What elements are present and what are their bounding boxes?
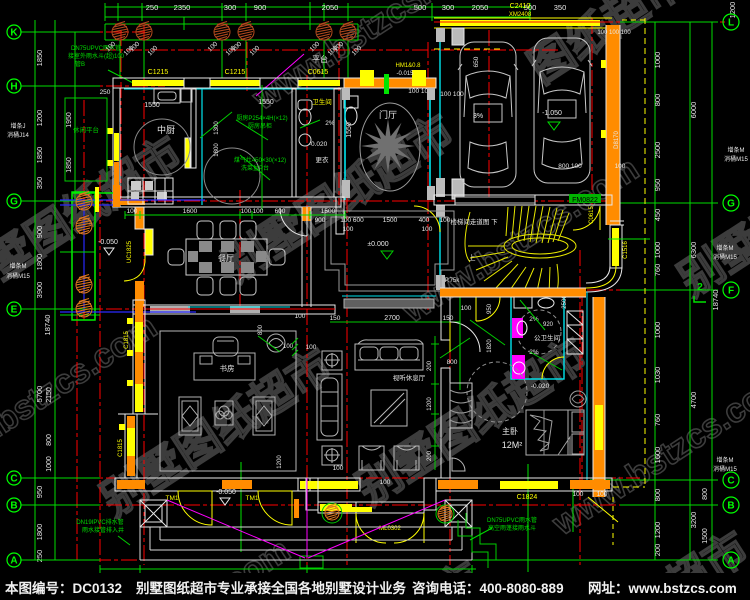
svg-text:800: 800	[653, 489, 662, 502]
svg-text:400: 400	[419, 217, 430, 224]
svg-text:消桶J14: 消桶J14	[7, 131, 29, 139]
svg-text:管B: 管B	[75, 60, 85, 68]
svg-text:600: 600	[275, 208, 286, 215]
svg-text:100: 100	[597, 491, 608, 498]
svg-text:楼梯间走道图 下: 楼梯间走道图 下	[450, 217, 498, 226]
svg-text:1550: 1550	[144, 102, 160, 109]
svg-text:H: H	[10, 82, 17, 93]
svg-text:100: 100	[615, 163, 626, 170]
svg-text:250: 250	[100, 89, 111, 96]
svg-text:消桶M15: 消桶M15	[6, 272, 30, 280]
svg-text:1550: 1550	[346, 122, 353, 138]
svg-text:-0.050: -0.050	[98, 239, 118, 246]
svg-text:2050: 2050	[472, 3, 489, 12]
svg-text:250: 250	[146, 3, 159, 12]
svg-text:K: K	[10, 28, 18, 39]
svg-text:100: 100	[283, 344, 294, 350]
svg-text:18740: 18740	[711, 290, 720, 311]
svg-text:2: 2	[697, 282, 703, 293]
svg-text:100: 100	[461, 305, 472, 312]
svg-text:6300: 6300	[689, 242, 698, 259]
svg-text:TM1: TM1	[166, 495, 179, 502]
svg-text:100: 100	[440, 217, 451, 224]
svg-text:-0.015: -0.015	[396, 71, 414, 77]
svg-text:增条M: 增条M	[717, 244, 734, 252]
svg-text:别墅图纸超市专业承接全国各地别墅设计业务: 别墅图纸超市专业承接全国各地别墅设计业务	[135, 580, 406, 596]
svg-text:HM1&0.8: HM1&0.8	[395, 63, 421, 69]
svg-text:本图编号：DC0132: 本图编号：DC0132	[5, 580, 122, 596]
svg-text:2150: 2150	[46, 387, 53, 403]
svg-text:100: 100	[422, 226, 433, 233]
svg-text:E: E	[11, 305, 18, 316]
svg-text:150: 150	[443, 315, 454, 322]
svg-text:C1516: C1516	[623, 241, 629, 259]
svg-text:B: B	[727, 501, 734, 512]
svg-text:200: 200	[653, 544, 662, 557]
svg-text:1950: 1950	[66, 112, 73, 128]
svg-text:100 100: 100 100	[440, 91, 464, 98]
svg-text:G: G	[727, 199, 735, 210]
svg-text:卫生间: 卫生间	[312, 97, 332, 106]
svg-text:1800: 1800	[214, 143, 220, 157]
svg-text:-0.050: -0.050	[216, 489, 236, 496]
svg-text:DN75UPVC雨水管: DN75UPVC雨水管	[487, 516, 537, 524]
svg-text:450: 450	[653, 209, 662, 222]
svg-text:C1824: C1824	[517, 494, 538, 501]
svg-text:更衣: 更衣	[316, 155, 330, 164]
svg-text:L: L	[728, 18, 734, 29]
svg-text:3%: 3%	[473, 113, 483, 120]
svg-text:1550: 1550	[258, 99, 274, 106]
svg-text:D8170: D8170	[614, 131, 620, 149]
svg-text:C1815: C1815	[124, 331, 130, 349]
svg-text:760: 760	[653, 414, 662, 427]
svg-text:12M²: 12M²	[502, 440, 523, 450]
svg-text:1200: 1200	[277, 455, 283, 469]
svg-text:1200: 1200	[427, 397, 433, 411]
svg-text:DN19IPVC排水管: DN19IPVC排水管	[76, 518, 123, 526]
svg-text:±0.000: ±0.000	[367, 241, 388, 248]
svg-text:C0615: C0615	[589, 206, 595, 224]
svg-text:1800: 1800	[35, 524, 44, 541]
svg-text:1200: 1200	[35, 110, 44, 127]
svg-text:A: A	[10, 556, 17, 567]
svg-text:C: C	[10, 474, 17, 485]
svg-text:平台: 平台	[312, 54, 328, 64]
svg-text:-0.020: -0.020	[531, 383, 550, 390]
svg-text:950: 950	[487, 303, 493, 314]
svg-text:咨询电话：400-8080-889: 咨询电话：400-8080-889	[412, 580, 564, 596]
svg-text:1500: 1500	[702, 528, 709, 544]
svg-text:增条M: 增条M	[728, 146, 745, 154]
svg-text:100: 100	[253, 208, 264, 215]
svg-text:A: A	[727, 556, 734, 567]
svg-text:950: 950	[653, 179, 662, 192]
svg-text:公卫生间: 公卫生间	[534, 333, 560, 342]
svg-text:休闲平台: 休闲平台	[73, 125, 99, 134]
svg-text:C1215: C1215	[225, 69, 246, 76]
svg-text:网址：www.bstzcs.com: 网址：www.bstzcs.com	[588, 580, 737, 596]
svg-text:800: 800	[447, 359, 458, 366]
svg-text:200: 200	[427, 450, 433, 461]
svg-text:200: 200	[427, 360, 433, 371]
svg-text:800: 800	[653, 94, 662, 107]
svg-text:2700: 2700	[384, 315, 400, 322]
svg-text:800: 800	[258, 324, 264, 335]
svg-text:1000: 1000	[653, 52, 662, 69]
svg-text:1800: 1800	[35, 254, 44, 271]
svg-text:P.75k: P.75k	[445, 278, 461, 284]
svg-text:C1215: C1215	[148, 69, 169, 76]
svg-text:1200: 1200	[653, 522, 662, 539]
svg-text:350: 350	[35, 177, 44, 190]
svg-text:1000: 1000	[46, 456, 53, 472]
svg-text:C1815: C1815	[118, 439, 124, 457]
svg-text:100: 100	[306, 344, 317, 351]
svg-text:920: 920	[543, 322, 554, 328]
svg-text:650: 650	[473, 56, 480, 67]
svg-text:100: 100	[380, 479, 391, 486]
svg-text:300: 300	[224, 3, 237, 12]
svg-text:100: 100	[333, 465, 344, 472]
svg-text:C: C	[727, 476, 734, 487]
svg-text:1500: 1500	[383, 217, 398, 224]
svg-text:3900: 3900	[35, 282, 44, 299]
svg-text:增条M: 增条M	[10, 262, 27, 270]
svg-text:900: 900	[254, 3, 267, 12]
svg-text:2350: 2350	[174, 3, 191, 12]
svg-text:1000: 1000	[653, 242, 662, 259]
svg-text:中厨: 中厨	[157, 124, 175, 135]
svg-text:高空雨蓬接雨水斗: 高空雨蓬接雨水斗	[488, 524, 536, 532]
svg-text:2050: 2050	[322, 3, 339, 12]
svg-text:800: 800	[46, 434, 53, 446]
svg-text:TM1: TM1	[246, 495, 259, 502]
svg-text:1850: 1850	[35, 50, 44, 67]
svg-text:950: 950	[35, 486, 44, 499]
svg-text:增条J: 增条J	[10, 122, 25, 130]
svg-text:760: 760	[653, 264, 662, 277]
svg-text:3200: 3200	[689, 512, 698, 529]
svg-text:-1.050: -1.050	[542, 110, 562, 117]
svg-text:煤气灶450×30(×12): 煤气灶450×30(×12)	[234, 156, 286, 164]
svg-text:门厅: 门厅	[379, 109, 397, 120]
svg-text:-0.020: -0.020	[309, 141, 328, 148]
svg-text:消桶M15: 消桶M15	[713, 253, 737, 261]
svg-text:F: F	[728, 286, 734, 297]
svg-text:1850: 1850	[66, 157, 73, 173]
svg-text:500: 500	[414, 3, 427, 12]
svg-text:1000: 1000	[653, 322, 662, 339]
svg-text:900: 900	[35, 226, 44, 239]
svg-text:1820: 1820	[487, 339, 493, 353]
svg-text:餐厅: 餐厅	[218, 254, 234, 263]
svg-text:18740: 18740	[43, 315, 52, 336]
svg-text:4700: 4700	[689, 392, 698, 409]
svg-text:上: 上	[469, 253, 476, 262]
svg-text:150: 150	[330, 315, 341, 322]
svg-text:1300: 1300	[214, 121, 220, 135]
svg-text:100: 100	[127, 208, 138, 215]
svg-text:UC1825: UC1825	[127, 240, 133, 263]
svg-text:厨房P254×4H(×12): 厨房P254×4H(×12)	[236, 114, 287, 122]
svg-text:C0615: C0615	[308, 69, 329, 76]
svg-text:G: G	[10, 197, 18, 208]
svg-text:100: 100	[241, 208, 252, 215]
svg-text:350: 350	[554, 3, 567, 12]
svg-text:增条M: 增条M	[717, 456, 734, 464]
svg-text:1600: 1600	[183, 208, 198, 215]
svg-text:5700: 5700	[35, 386, 44, 403]
svg-text:6000: 6000	[689, 102, 698, 119]
svg-text:100: 100	[573, 491, 584, 498]
svg-text:1500: 1500	[321, 208, 336, 215]
svg-text:接室外雨水斗(超)100: 接室外雨水斗(超)100	[68, 52, 125, 60]
svg-text:1600: 1600	[653, 447, 662, 464]
svg-text:900: 900	[315, 217, 326, 224]
svg-text:1850: 1850	[35, 147, 44, 164]
svg-text:FM0822: FM0822	[572, 197, 598, 204]
svg-text:100 100 100: 100 100 100	[597, 30, 631, 36]
svg-text:2500: 2500	[653, 142, 662, 159]
svg-text:书房: 书房	[220, 363, 235, 373]
svg-text:800: 800	[702, 488, 709, 500]
svg-text:消桶M15: 消桶M15	[713, 465, 737, 473]
svg-text:消桶M15: 消桶M15	[724, 155, 748, 163]
svg-text:XM2408: XM2408	[509, 12, 532, 18]
svg-text:主卧: 主卧	[502, 426, 518, 436]
svg-text:1030: 1030	[653, 367, 662, 384]
svg-text:800 100: 800 100	[558, 163, 582, 170]
svg-text:300: 300	[442, 3, 455, 12]
svg-text:视听休息厅: 视听休息厅	[393, 373, 426, 382]
svg-text:C2410: C2410	[510, 3, 531, 10]
svg-text:2%: 2%	[325, 120, 335, 127]
svg-text:100: 100	[295, 313, 306, 320]
svg-text:雨水接管排入井: 雨水接管排入井	[82, 526, 124, 534]
svg-text:B: B	[10, 501, 17, 512]
svg-text:厨房吊柜: 厨房吊柜	[248, 122, 272, 130]
